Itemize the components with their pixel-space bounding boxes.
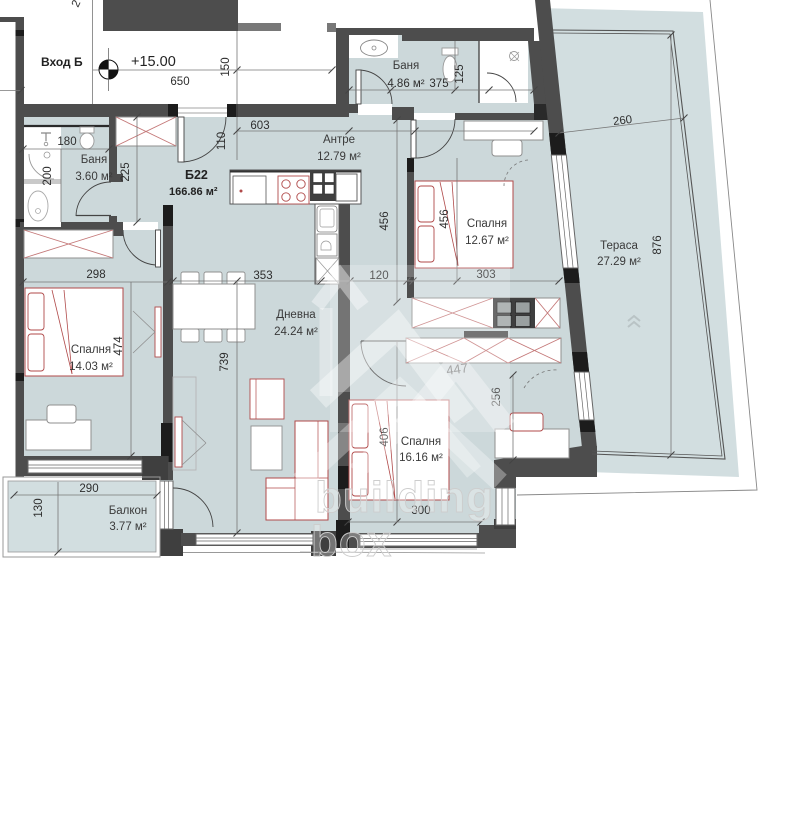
svg-text:4.86 м²: 4.86 м² <box>387 78 424 90</box>
svg-text:200: 200 <box>42 166 54 185</box>
svg-text:12.67 м²: 12.67 м² <box>465 235 509 247</box>
svg-text:Баня: Баня <box>393 60 420 72</box>
svg-text:Балкон: Балкон <box>109 505 148 517</box>
svg-text:739: 739 <box>219 352 231 371</box>
svg-text:375: 375 <box>429 78 448 90</box>
svg-text:3.77 м²: 3.77 м² <box>109 521 146 533</box>
svg-text:box: box <box>311 517 392 566</box>
svg-text:353: 353 <box>253 270 272 282</box>
svg-text:125: 125 <box>454 64 466 83</box>
svg-text:180: 180 <box>57 136 76 148</box>
svg-text:260: 260 <box>612 114 633 128</box>
svg-text:166.86 м²: 166.86 м² <box>169 186 218 198</box>
svg-text:24.24 м²: 24.24 м² <box>274 326 318 338</box>
svg-text:Б22: Б22 <box>185 168 208 182</box>
svg-text:110: 110 <box>216 132 228 150</box>
svg-text:290: 290 <box>79 483 98 495</box>
svg-text:474: 474 <box>113 336 125 356</box>
svg-text:876: 876 <box>652 235 664 254</box>
svg-text:603: 603 <box>250 120 269 132</box>
svg-text:Спалня: Спалня <box>71 344 111 356</box>
svg-text:27.29 м²: 27.29 м² <box>597 256 641 268</box>
svg-text:Тераса: Тераса <box>600 240 638 252</box>
svg-text:456: 456 <box>439 209 451 228</box>
svg-text:Спалня: Спалня <box>401 436 441 448</box>
svg-text:12.79 м²: 12.79 м² <box>317 151 361 163</box>
svg-text:14.03 м²: 14.03 м² <box>69 361 113 373</box>
svg-text:447: 447 <box>445 360 469 378</box>
svg-text:456: 456 <box>379 211 391 230</box>
svg-text:16.16 м²: 16.16 м² <box>399 452 443 464</box>
svg-text:building: building <box>315 473 494 522</box>
svg-text:3.60 м²: 3.60 м² <box>75 171 112 183</box>
svg-text:298: 298 <box>86 269 105 281</box>
svg-text:+15.00: +15.00 <box>131 54 176 70</box>
svg-text:Спалня: Спалня <box>467 218 507 230</box>
svg-text:130: 130 <box>33 498 45 517</box>
svg-text:Антре: Антре <box>323 134 355 146</box>
svg-text:225: 225 <box>120 162 132 181</box>
svg-text:Дневна: Дневна <box>276 309 316 321</box>
svg-text:650: 650 <box>170 76 189 88</box>
svg-text:Вход Б: Вход Б <box>41 55 83 69</box>
svg-text:150: 150 <box>220 57 232 76</box>
svg-text:Баня: Баня <box>81 154 108 166</box>
